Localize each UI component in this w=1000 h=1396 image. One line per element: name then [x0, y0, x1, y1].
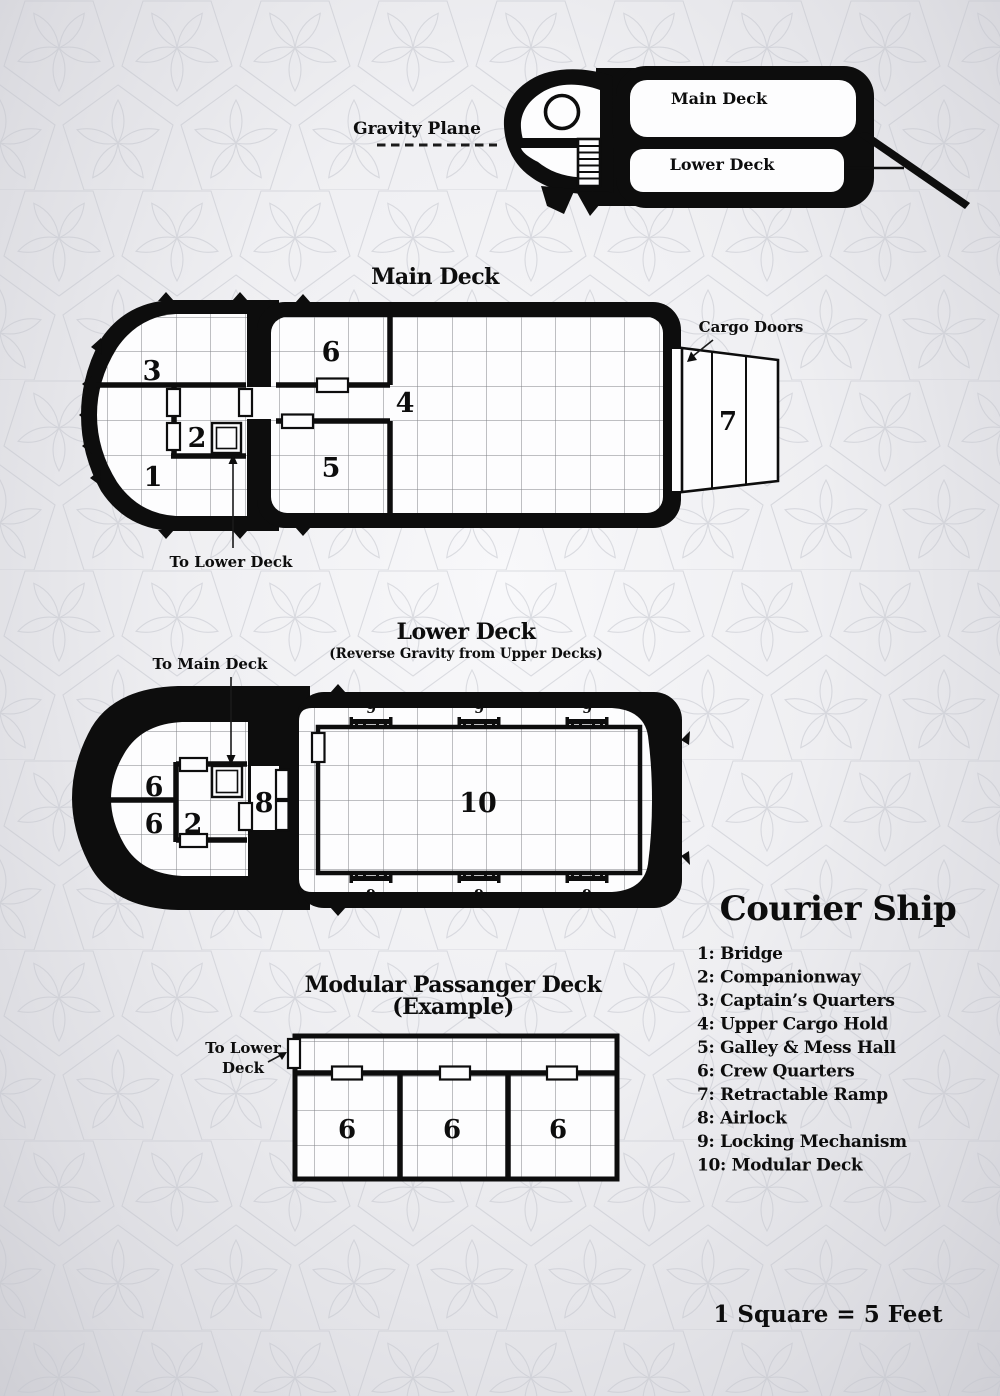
legend-item: 7: Retractable Ramp: [697, 1085, 888, 1105]
door: [180, 758, 207, 771]
to-lower-deck-label-line2: Deck: [222, 1059, 265, 1077]
lock-label: 9: [474, 887, 484, 904]
room-label-crew-quarters: 6: [145, 772, 164, 803]
room-label-crew-quarters: 6: [322, 337, 341, 368]
lock-label: 9: [582, 887, 592, 904]
door: [332, 1067, 362, 1080]
legend-item: 1: Bridge: [697, 944, 783, 964]
to-main-deck-label: To Main Deck: [153, 655, 269, 673]
lock-label: 9: [366, 887, 376, 904]
door: [276, 801, 289, 830]
room-label-crew-quarters: 6: [145, 809, 164, 840]
legend-item: 8: Airlock: [697, 1109, 788, 1129]
lock-label: 9: [582, 700, 592, 717]
legend-item: 3: Captain’s Quarters: [697, 991, 895, 1011]
scale-note: 1 Square = 5 Feet: [713, 1301, 943, 1328]
deck-plan-page: Gravity Plane Main Deck Lower Deck Main …: [0, 0, 1000, 1396]
room-label-crew-quarters: 6: [338, 1115, 356, 1145]
cargo-doors-label: Cargo Doors: [699, 318, 804, 336]
modular-deck-subtitle: (Example): [392, 994, 513, 1020]
ladder-icon: [578, 139, 600, 186]
room-label-companionway: 2: [188, 423, 207, 454]
hatch-icon: [212, 423, 241, 453]
room-label-crew-quarters: 6: [549, 1115, 567, 1145]
hatch-icon: [288, 1039, 300, 1068]
porthole-window-icon: [546, 96, 579, 129]
room-label-retractable-ramp: 7: [719, 407, 737, 437]
room-label-bridge: 1: [144, 462, 163, 493]
lock-label: 9: [366, 700, 376, 717]
modular-deck-grid: [295, 1036, 617, 1179]
legend-title: Courier Ship: [720, 889, 957, 929]
door: [167, 389, 180, 416]
door: [239, 389, 252, 416]
side-deck-divider: [516, 138, 862, 148]
side-lower-deck-label: Lower Deck: [670, 155, 776, 174]
legend-item: 5: Galley & Mess Hall: [697, 1038, 897, 1058]
hatch-icon: [212, 766, 242, 797]
lock-label: 9: [474, 700, 484, 717]
room-label-upper-cargo-hold: 4: [396, 388, 415, 419]
cargo-doors-slit: [671, 348, 682, 492]
room-label-galley: 5: [322, 453, 341, 484]
lower-deck-subtitle: (Reverse Gravity from Upper Decks): [329, 646, 603, 662]
door: [167, 423, 180, 450]
legend-item: 6: Crew Quarters: [697, 1062, 854, 1082]
room-label-companionway: 2: [184, 809, 203, 840]
legend-item: 10: Modular Deck: [697, 1156, 864, 1176]
room-label-captains-quarters: 3: [143, 356, 162, 387]
legend-item: 9: Locking Mechanism: [697, 1132, 907, 1152]
door: [282, 415, 313, 429]
lower-deck-title: Lower Deck: [396, 619, 536, 645]
door: [239, 803, 252, 830]
courier-ship-map: Gravity Plane Main Deck Lower Deck Main …: [0, 0, 1000, 1396]
room-label-airlock: 8: [255, 788, 274, 819]
main-deck-title: Main Deck: [371, 264, 500, 290]
door: [440, 1067, 470, 1080]
door: [317, 379, 348, 393]
to-lower-deck-label: To Lower Deck: [170, 553, 293, 571]
to-lower-deck-label-line1: To Lower: [205, 1039, 282, 1057]
door: [312, 733, 325, 762]
door: [276, 770, 289, 799]
side-main-deck-label: Main Deck: [671, 89, 768, 108]
legend-item: 2: Companionway: [697, 968, 862, 988]
room-label-crew-quarters: 6: [443, 1115, 461, 1145]
gravity-plane-label: Gravity Plane: [353, 119, 481, 139]
door: [547, 1067, 577, 1080]
room-label-modular-deck: 10: [459, 788, 497, 819]
legend-item: 4: Upper Cargo Hold: [697, 1015, 888, 1035]
